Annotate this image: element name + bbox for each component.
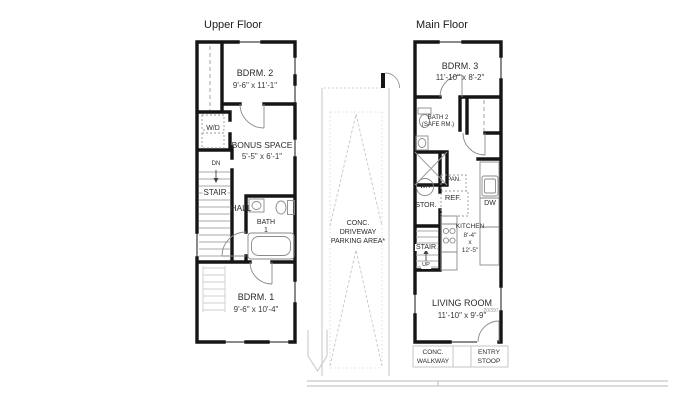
- hall-label: HALL: [230, 204, 251, 213]
- gate-door-arc: [385, 73, 400, 88]
- kitchen-dim-2: x: [468, 240, 471, 247]
- up-label: UP: [421, 263, 431, 269]
- window-lines: [415, 42, 501, 342]
- bdrm3-label: BDRM. 3: [442, 62, 479, 71]
- gate-post: [381, 73, 385, 88]
- bdrm1-label: BDRM. 1: [238, 293, 275, 302]
- stoop-label-2: STOOP: [478, 359, 501, 366]
- driveway-label-3: PARKING AREA*: [331, 238, 385, 245]
- kitchen-label: KITCHEN: [456, 224, 485, 231]
- toilet-tank: [418, 108, 431, 114]
- bdrm3-dims: 11'-10" x 8'-2": [436, 74, 485, 82]
- sidewalk: [307, 381, 668, 386]
- walkway-label-1: CONC.: [423, 350, 444, 357]
- shower: [415, 152, 447, 185]
- wd-label: W/D: [205, 125, 221, 132]
- entry-door-tag: 20/397: [483, 309, 498, 314]
- pantry-label: PAN.: [447, 177, 461, 183]
- stairwell-below: [203, 266, 225, 312]
- bonus-space-label: BONUS SPACE: [232, 141, 293, 150]
- toilet-bowl: [276, 201, 286, 214]
- parking-stall-marker: [330, 114, 382, 226]
- bath2-label-2: (SAFE RM.): [422, 122, 454, 128]
- stoop-label-1: ENTRY: [478, 350, 500, 357]
- cooktop-burner: [443, 228, 448, 233]
- main-stair-label: STAIR: [415, 244, 437, 251]
- cooktop-burner: [443, 238, 448, 243]
- ref-label: REF.: [445, 194, 461, 202]
- wh-label: WH: [420, 184, 430, 190]
- walkway-connector: [453, 346, 471, 367]
- bath2-label: BATH 2: [428, 115, 449, 121]
- cooktop-burner: [450, 228, 455, 233]
- bdrm2-dims: 9'-6" x 11'-1": [233, 82, 277, 90]
- bdrm2-label: BDRM. 2: [237, 69, 274, 78]
- stor-label: STOR.: [415, 202, 436, 209]
- cooktop-burner: [450, 238, 455, 243]
- floor-plan-canvas: Upper Floor BDRM. 2 9'-6" x 11'-1" W/D B…: [0, 0, 700, 400]
- dn-label: DN: [211, 161, 222, 167]
- main-floor-title: Main Floor: [416, 20, 468, 31]
- bonus-space-dims: 5'-5" x 6'-1": [242, 153, 282, 161]
- walkway-label-2: WALKWAY: [417, 359, 449, 366]
- kitchen-dim-3: 12'-5": [462, 248, 479, 255]
- bath1-label-2: 1: [264, 227, 268, 234]
- parking-stall-marker: [330, 250, 382, 366]
- dn-arrowhead: [214, 178, 219, 183]
- bath1-fixtures: [248, 199, 295, 259]
- driveway-label-2: DRIVEWAY: [340, 229, 377, 236]
- driveway-label-1: CONC.: [347, 220, 370, 227]
- living-room-label: LIVING ROOM: [432, 299, 492, 308]
- bath1-label: BATH: [257, 219, 275, 226]
- bdrm1-dims: 9'-6" x 10'-4": [234, 306, 279, 314]
- living-room-dims: 11'-10" x 9'-9": [438, 312, 487, 320]
- dw-label: DW: [484, 200, 496, 207]
- upper-stair-label: STAIR: [203, 189, 228, 197]
- driveway-apron-arrow: [308, 330, 327, 371]
- upper-floor-title: Upper Floor: [204, 20, 262, 31]
- floor-plan-linework: [0, 0, 700, 400]
